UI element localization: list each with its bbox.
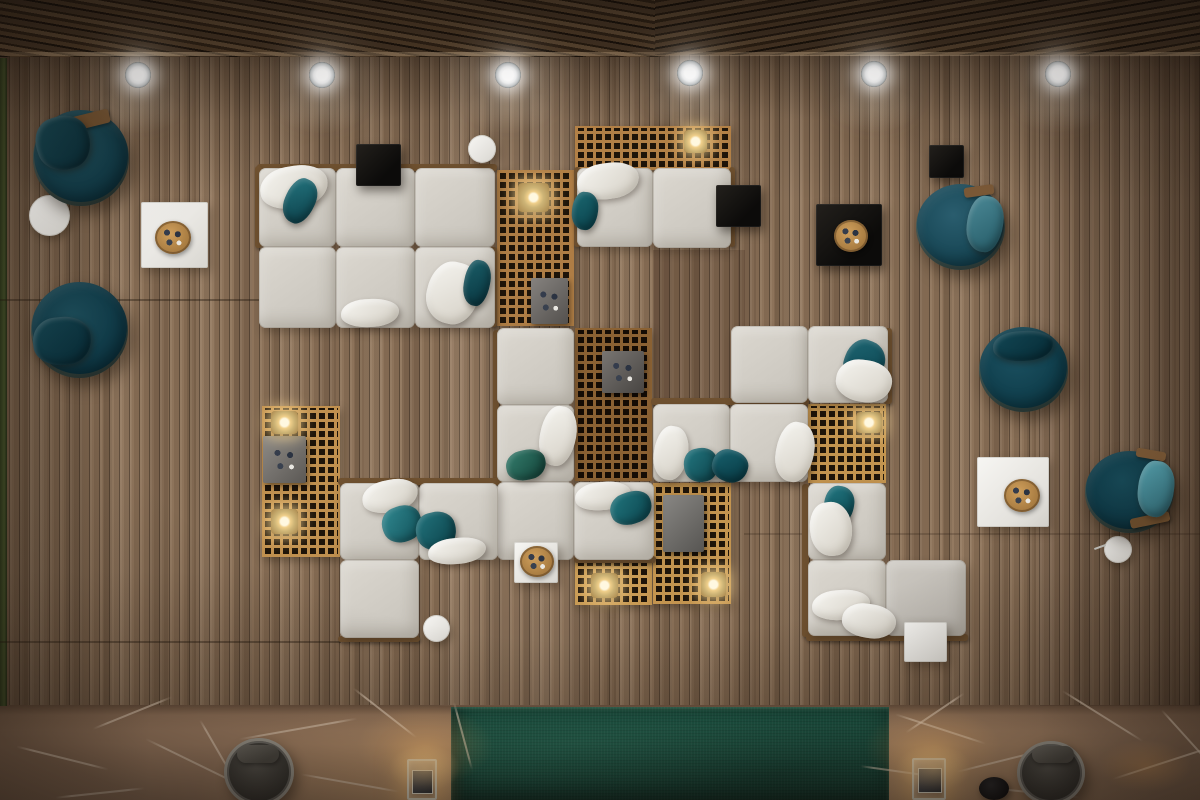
- light-pool-3: [463, 86, 553, 134]
- lattice-light-6: [701, 572, 726, 597]
- floor-lantern-top-1: [412, 770, 433, 794]
- planting-strip: [0, 58, 7, 706]
- gray-chair-bolster-2: [1032, 746, 1074, 763]
- cup-set-1: [534, 283, 565, 319]
- cup-set-6: [1007, 482, 1037, 509]
- gray-chair-bolster-1: [237, 745, 279, 763]
- lattice-light-2: [684, 130, 707, 153]
- ceiling-light-4: [677, 60, 703, 86]
- sofa-module-c1: [731, 326, 808, 403]
- ceiling-light-1: [125, 62, 151, 88]
- scene: [0, 0, 1200, 800]
- round-table-white-3: [423, 615, 450, 642]
- light-pool-4: [645, 84, 735, 132]
- ceiling-band-right: [655, 0, 1200, 55]
- ceiling-band-left: [0, 0, 665, 57]
- ceiling-lit-edge: [0, 52, 1200, 56]
- sofa-module-a3: [415, 168, 495, 247]
- sofa-module-d1: [497, 328, 574, 405]
- green-rug: [451, 707, 889, 800]
- cup-set-3: [606, 355, 640, 389]
- lattice-light-3: [271, 411, 298, 434]
- ceiling-light-3: [495, 62, 521, 88]
- lattice-light-5: [591, 573, 618, 598]
- lattice-light-1: [518, 183, 549, 212]
- lattice-light-4: [271, 509, 298, 534]
- deck-seam-2: [0, 641, 341, 643]
- round-table-white-2: [468, 135, 496, 163]
- cup-set-5: [837, 223, 865, 249]
- ceiling-light-2: [309, 62, 335, 88]
- ceiling-light-6: [1045, 61, 1071, 87]
- lattice-light-7: [856, 412, 882, 433]
- coffee-table-black-2: [716, 185, 761, 227]
- light-pool-5: [829, 85, 919, 133]
- coffee-table-black-1: [356, 144, 401, 186]
- coffee-table-black-3: [929, 145, 964, 178]
- cup-set-4: [158, 224, 188, 251]
- concrete-cube-4: [663, 495, 704, 552]
- cup-set-7: [523, 549, 551, 574]
- light-pool-6: [1013, 85, 1103, 133]
- sofa-module-e3: [340, 560, 419, 638]
- ceiling-light-5: [861, 61, 887, 87]
- side-table-white-4: [904, 622, 947, 662]
- light-pool-2: [277, 86, 367, 134]
- round-table-black: [979, 777, 1009, 800]
- floor-lantern-top-2: [918, 768, 942, 793]
- tray-table-white: [1104, 536, 1132, 563]
- cup-set-2: [267, 441, 302, 478]
- sofa-module-a4: [259, 247, 336, 328]
